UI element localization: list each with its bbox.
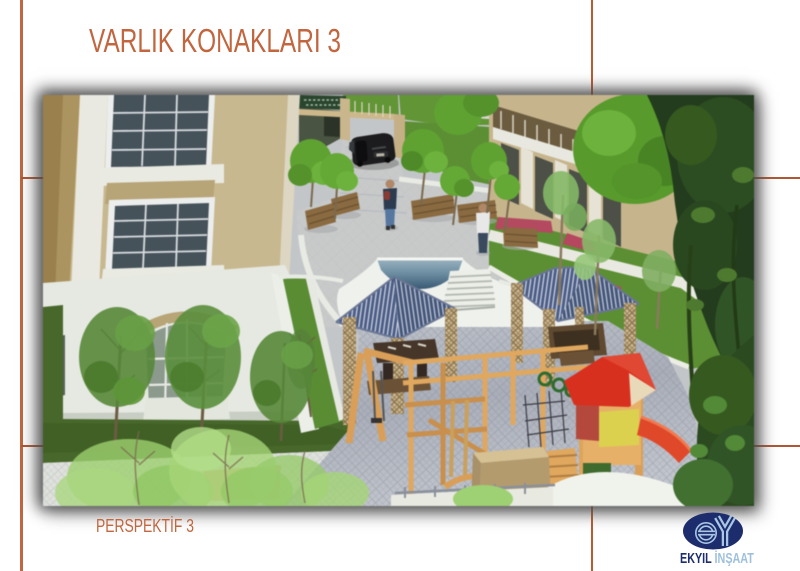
svg-text:EKYIL İNŞAAT: EKYIL İNŞAAT	[680, 549, 754, 566]
